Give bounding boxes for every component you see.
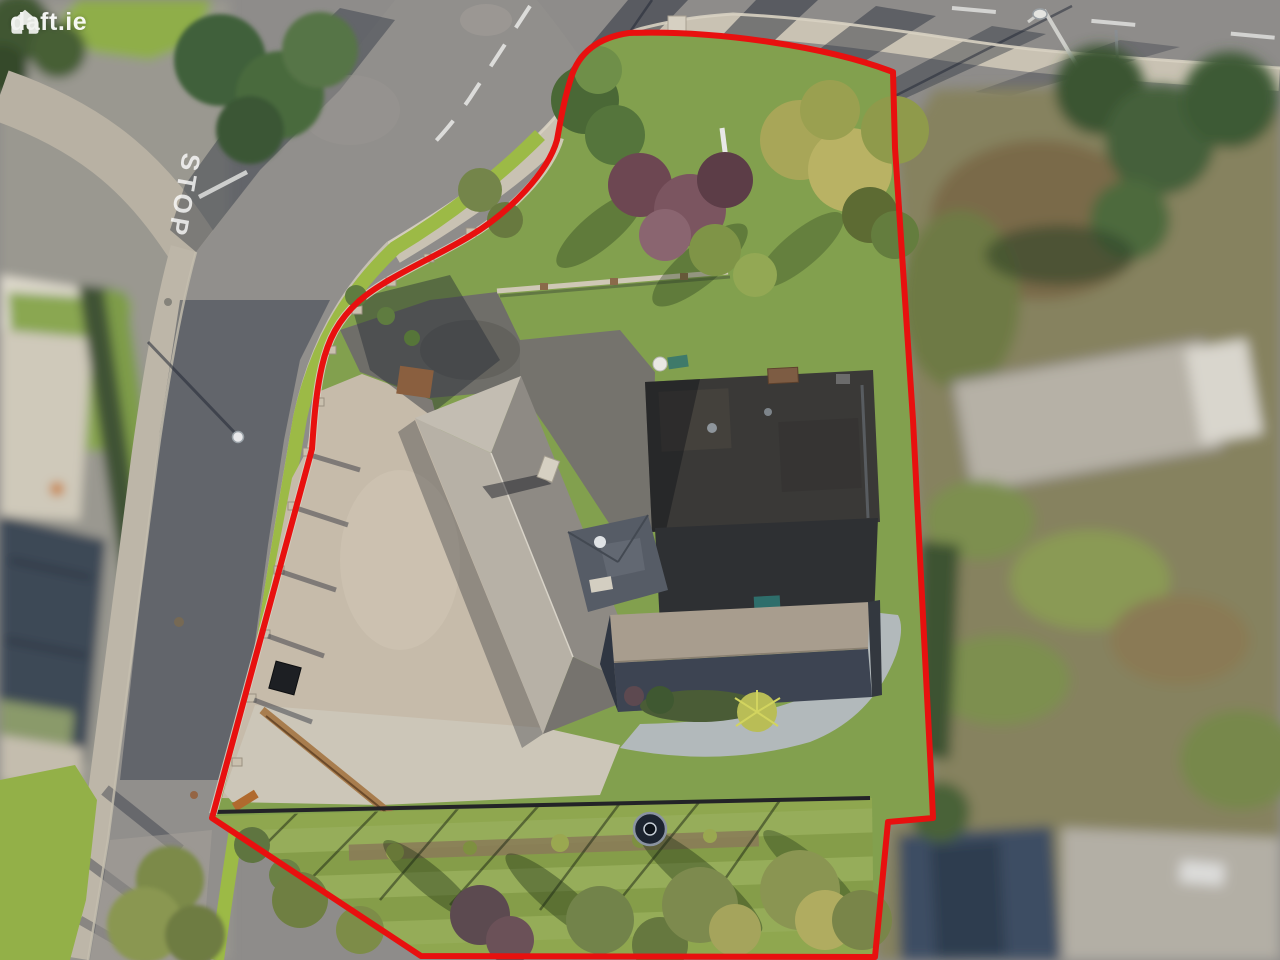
chimney-brown xyxy=(768,367,799,384)
white-disc xyxy=(653,357,667,371)
aerial-property-photo: STOP xyxy=(0,0,1280,960)
neighbour-right-blurred xyxy=(875,45,1280,960)
lamp-head xyxy=(1033,9,1047,19)
streetlamp-head xyxy=(233,432,244,443)
shed-roof xyxy=(396,366,434,398)
photo-canvas: STOP xyxy=(0,0,1280,960)
